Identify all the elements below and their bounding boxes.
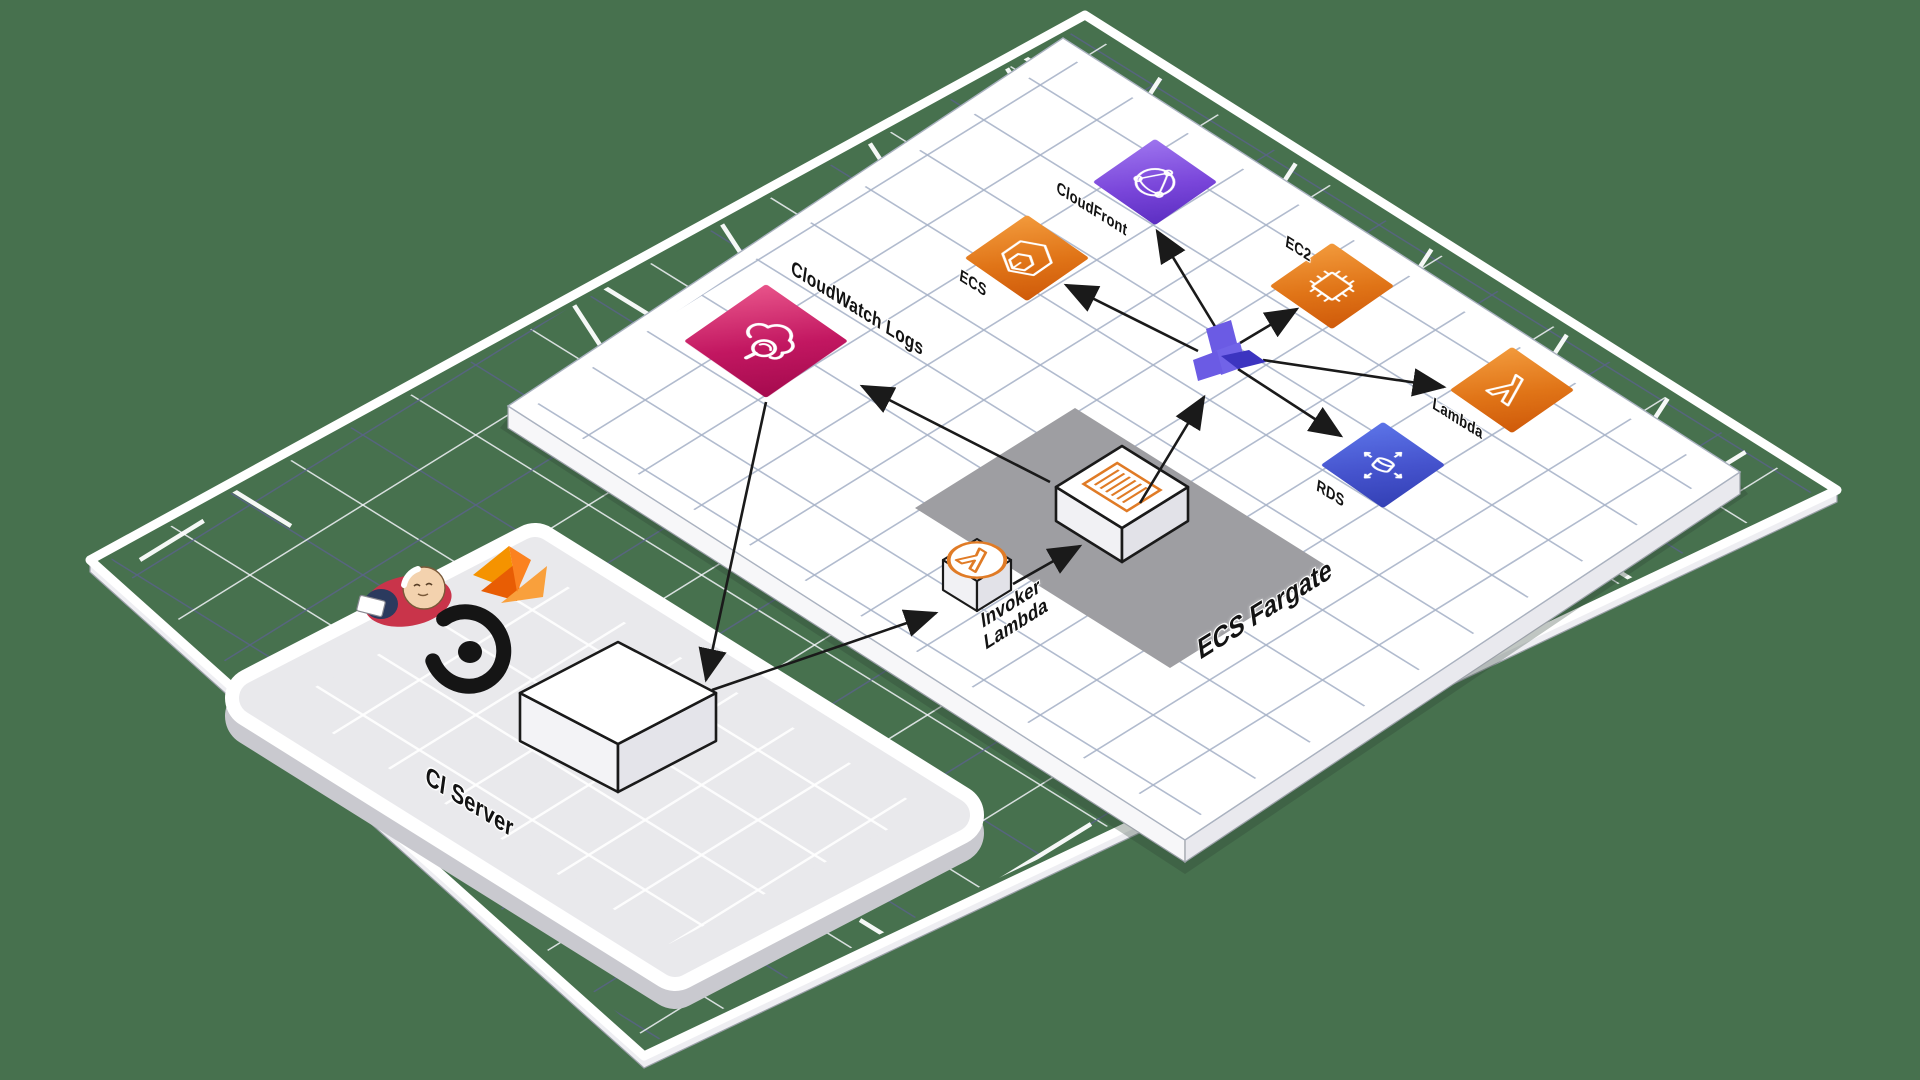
scene-canvas [0, 0, 1920, 1080]
isometric-diagram-stage: CloudWatch Logs ECS CloudFront EC2 Lambd… [0, 0, 1920, 1080]
